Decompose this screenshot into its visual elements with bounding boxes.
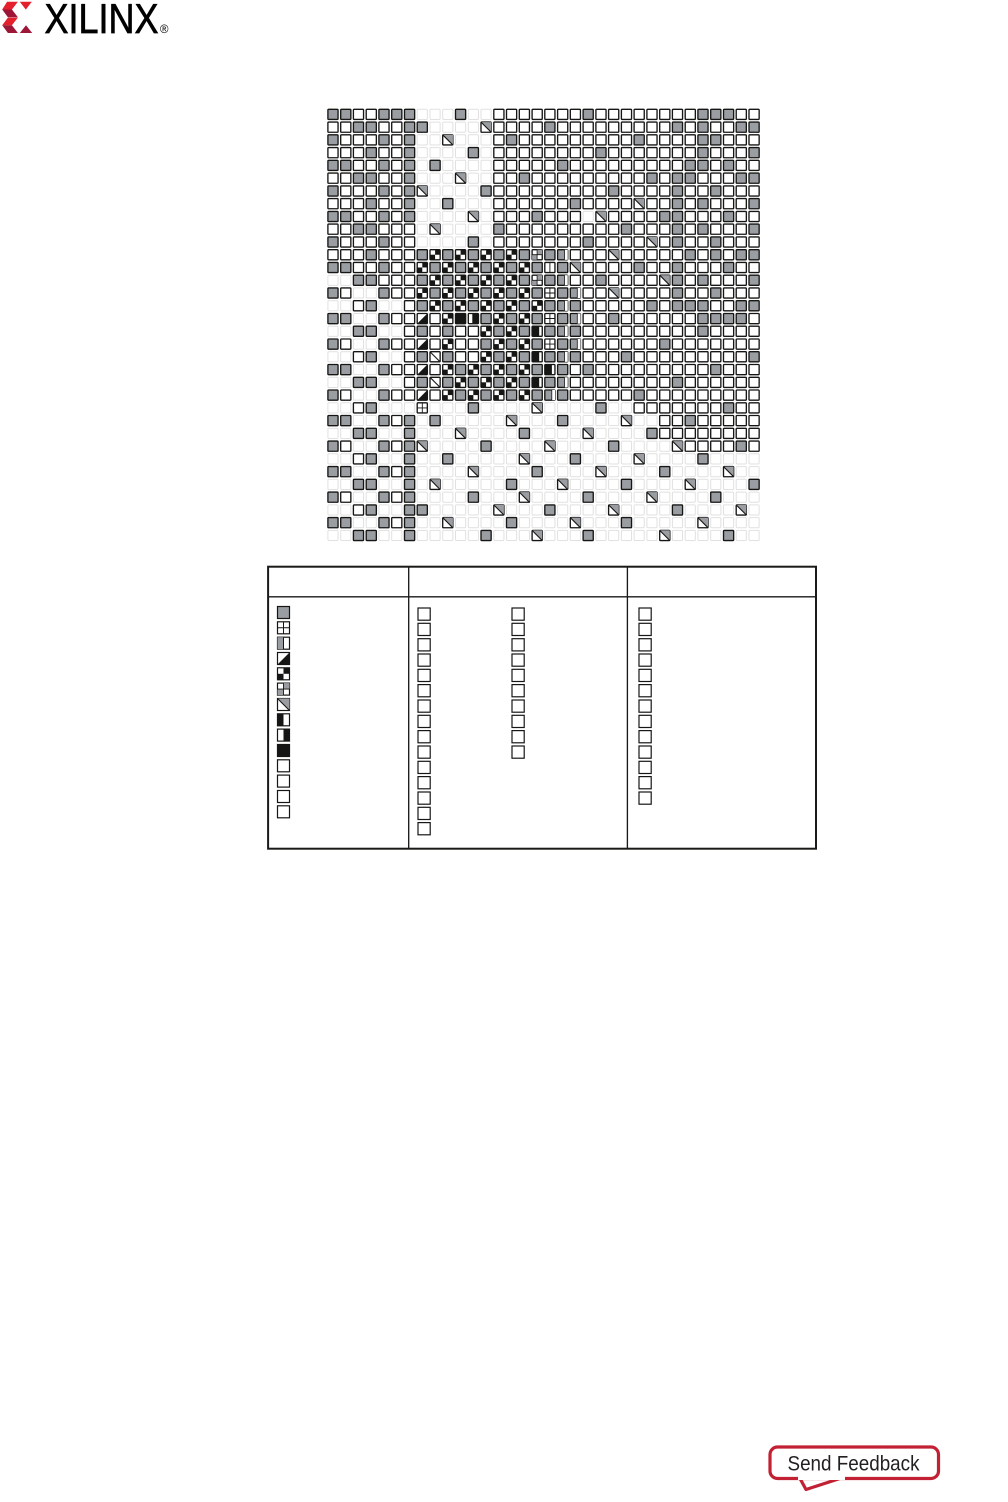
svg-text:®: ® xyxy=(160,24,169,36)
svg-text:Send Feedback: Send Feedback xyxy=(788,1452,920,1475)
svg-text:XILINX: XILINX xyxy=(45,0,159,42)
